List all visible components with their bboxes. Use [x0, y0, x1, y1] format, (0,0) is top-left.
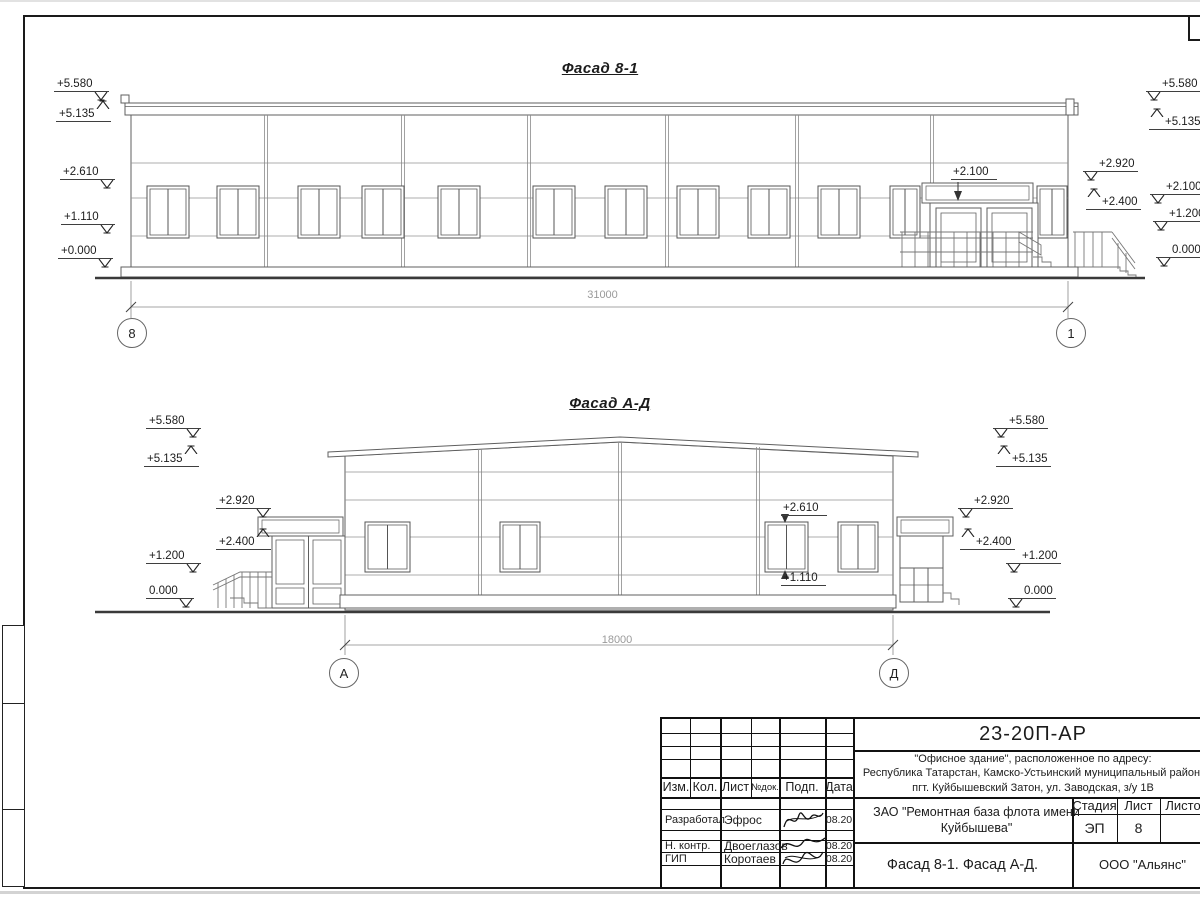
sheet-title: Фасад 8-1. Фасад А-Д. — [853, 842, 1072, 887]
elevation-mark: +2.920 — [216, 495, 271, 509]
elevation-arrow-down-icon — [99, 180, 115, 189]
elevation-mark: 0.000 — [1156, 244, 1200, 258]
level-note: +2.100 — [951, 166, 997, 180]
row-role: Н. контр. — [662, 840, 723, 852]
row-date: 08.20 — [825, 840, 853, 852]
dimension-label: 18000 — [557, 634, 677, 646]
dimension-label: 31000 — [540, 289, 665, 301]
elevation-mark: +2.920 — [1083, 158, 1138, 172]
row-name: Двоеглазов — [720, 840, 783, 852]
signature — [781, 805, 825, 833]
elevation-arrow-down-icon — [1146, 92, 1162, 101]
elevation-mark: 0.000 — [146, 585, 194, 599]
level-note: +1.110 — [781, 572, 826, 586]
elevation-arrow-down-icon — [1153, 222, 1169, 231]
row-role: ГИП — [662, 852, 723, 865]
elevation-mark: +2.920 — [958, 495, 1013, 509]
elevation-arrow-down-icon — [255, 509, 271, 518]
sheet-label: Лист — [1117, 797, 1160, 814]
elevation-arrow-down-icon — [958, 509, 974, 518]
elevation-mark: +5.580 — [1146, 78, 1200, 92]
col-ndok: №док. — [751, 777, 779, 797]
elevation-mark: +2.400 — [960, 536, 1015, 550]
elevation-arrow-down-icon — [185, 429, 201, 438]
col-data: Дата — [825, 777, 853, 797]
elevation-mark: +2.400 — [216, 536, 271, 550]
elevation-arrow-down-icon — [993, 429, 1009, 438]
elevation-mark: 0.000 — [1008, 585, 1056, 599]
row-name: Коротаев — [720, 852, 783, 865]
elevation-arrow-up-icon — [1086, 188, 1102, 197]
level-note: +2.610 — [781, 502, 827, 516]
elevation-arrow-down-icon — [178, 599, 194, 608]
axis-bubble-8: 8 — [117, 318, 147, 348]
axis-bubble-1: 1 — [1056, 318, 1086, 348]
elevation-mark: +5.135 — [144, 453, 199, 467]
company-name: ООО "Альянс" — [1072, 842, 1200, 887]
elevation-mark: +2.100 — [1150, 181, 1200, 195]
row-date: 08.20 — [825, 852, 853, 865]
elevation-arrow-up-icon — [183, 445, 199, 454]
row-date: 08.20 — [825, 809, 853, 830]
elevation-mark: +5.135 — [1149, 116, 1200, 130]
axis-bubble-d: Д — [879, 658, 909, 688]
axis-bubble-a: А — [329, 658, 359, 688]
row-role: Разработал — [662, 809, 723, 830]
col-izm: Изм. — [662, 777, 690, 797]
elevation-arrow-up-icon — [960, 528, 976, 537]
sheet-number: 8 — [1117, 814, 1160, 842]
sheet-edge-top — [0, 0, 1200, 2]
client-name: ЗАО "Ремонтная база флота имени Куйбышев… — [853, 797, 1100, 842]
facade-8-1-drawing — [88, 85, 1160, 350]
elevation-mark: +1.110 — [61, 211, 115, 225]
document-number: 23-20П-АР — [853, 719, 1200, 750]
frame-corner-box — [1188, 15, 1200, 41]
elevation-mark: +5.580 — [993, 415, 1048, 429]
filing-cell-1 — [2, 625, 25, 705]
elevation-mark: +5.580 — [54, 78, 109, 92]
title-block: Изм. Кол. Лист №док. Подп. Дата Разработ… — [660, 717, 1200, 889]
elevation-mark: +1.200 — [146, 550, 201, 564]
filing-cell-2 — [2, 703, 25, 811]
elevation-arrow-down-icon — [97, 259, 113, 268]
col-podp: Подп. — [779, 777, 825, 797]
elevation-arrow-down-icon — [1008, 599, 1024, 608]
filing-cell-3 — [2, 809, 25, 887]
col-list: Лист — [720, 777, 751, 797]
elevation-arrow-up-icon — [255, 528, 271, 537]
elevation-mark: +5.135 — [996, 453, 1051, 467]
elevation-arrow-down-icon — [1150, 195, 1166, 204]
elevation-mark: +5.580 — [146, 415, 201, 429]
elevation-mark: +2.610 — [60, 166, 115, 180]
col-kol: Кол. — [690, 777, 720, 797]
elevation-arrow-down-icon — [1006, 564, 1022, 573]
drawing-sheet: Фасад 8-1 — [0, 0, 1200, 900]
elevation-mark: +0.000 — [58, 245, 113, 259]
elevation-mark: +1.200 — [1006, 550, 1061, 564]
signature — [777, 834, 827, 874]
project-address: "Офисное здание", расположенное по адрес… — [853, 750, 1200, 797]
stage-label: Стадия — [1072, 797, 1117, 814]
row-name: Эфрос — [720, 809, 783, 830]
facade-8-1-title: Фасад 8-1 — [500, 60, 700, 77]
stage-value: ЭП — [1072, 814, 1117, 842]
elevation-mark: +5.135 — [56, 108, 111, 122]
elevation-mark: +1.200 — [1153, 208, 1200, 222]
elevation-arrow-up-icon — [1149, 108, 1165, 117]
elevation-arrow-up-icon — [996, 445, 1012, 454]
elevation-arrow-down-icon — [1156, 258, 1172, 267]
elevation-arrow-down-icon — [185, 564, 201, 573]
elevation-arrow-down-icon — [1083, 172, 1099, 181]
elevation-arrow-up-icon — [95, 100, 111, 109]
sheet-edge-bottom — [0, 891, 1200, 894]
elevation-mark: +2.400 — [1086, 196, 1141, 210]
elevation-arrow-down-icon — [99, 225, 115, 234]
sheets-label: Листов — [1160, 797, 1200, 814]
